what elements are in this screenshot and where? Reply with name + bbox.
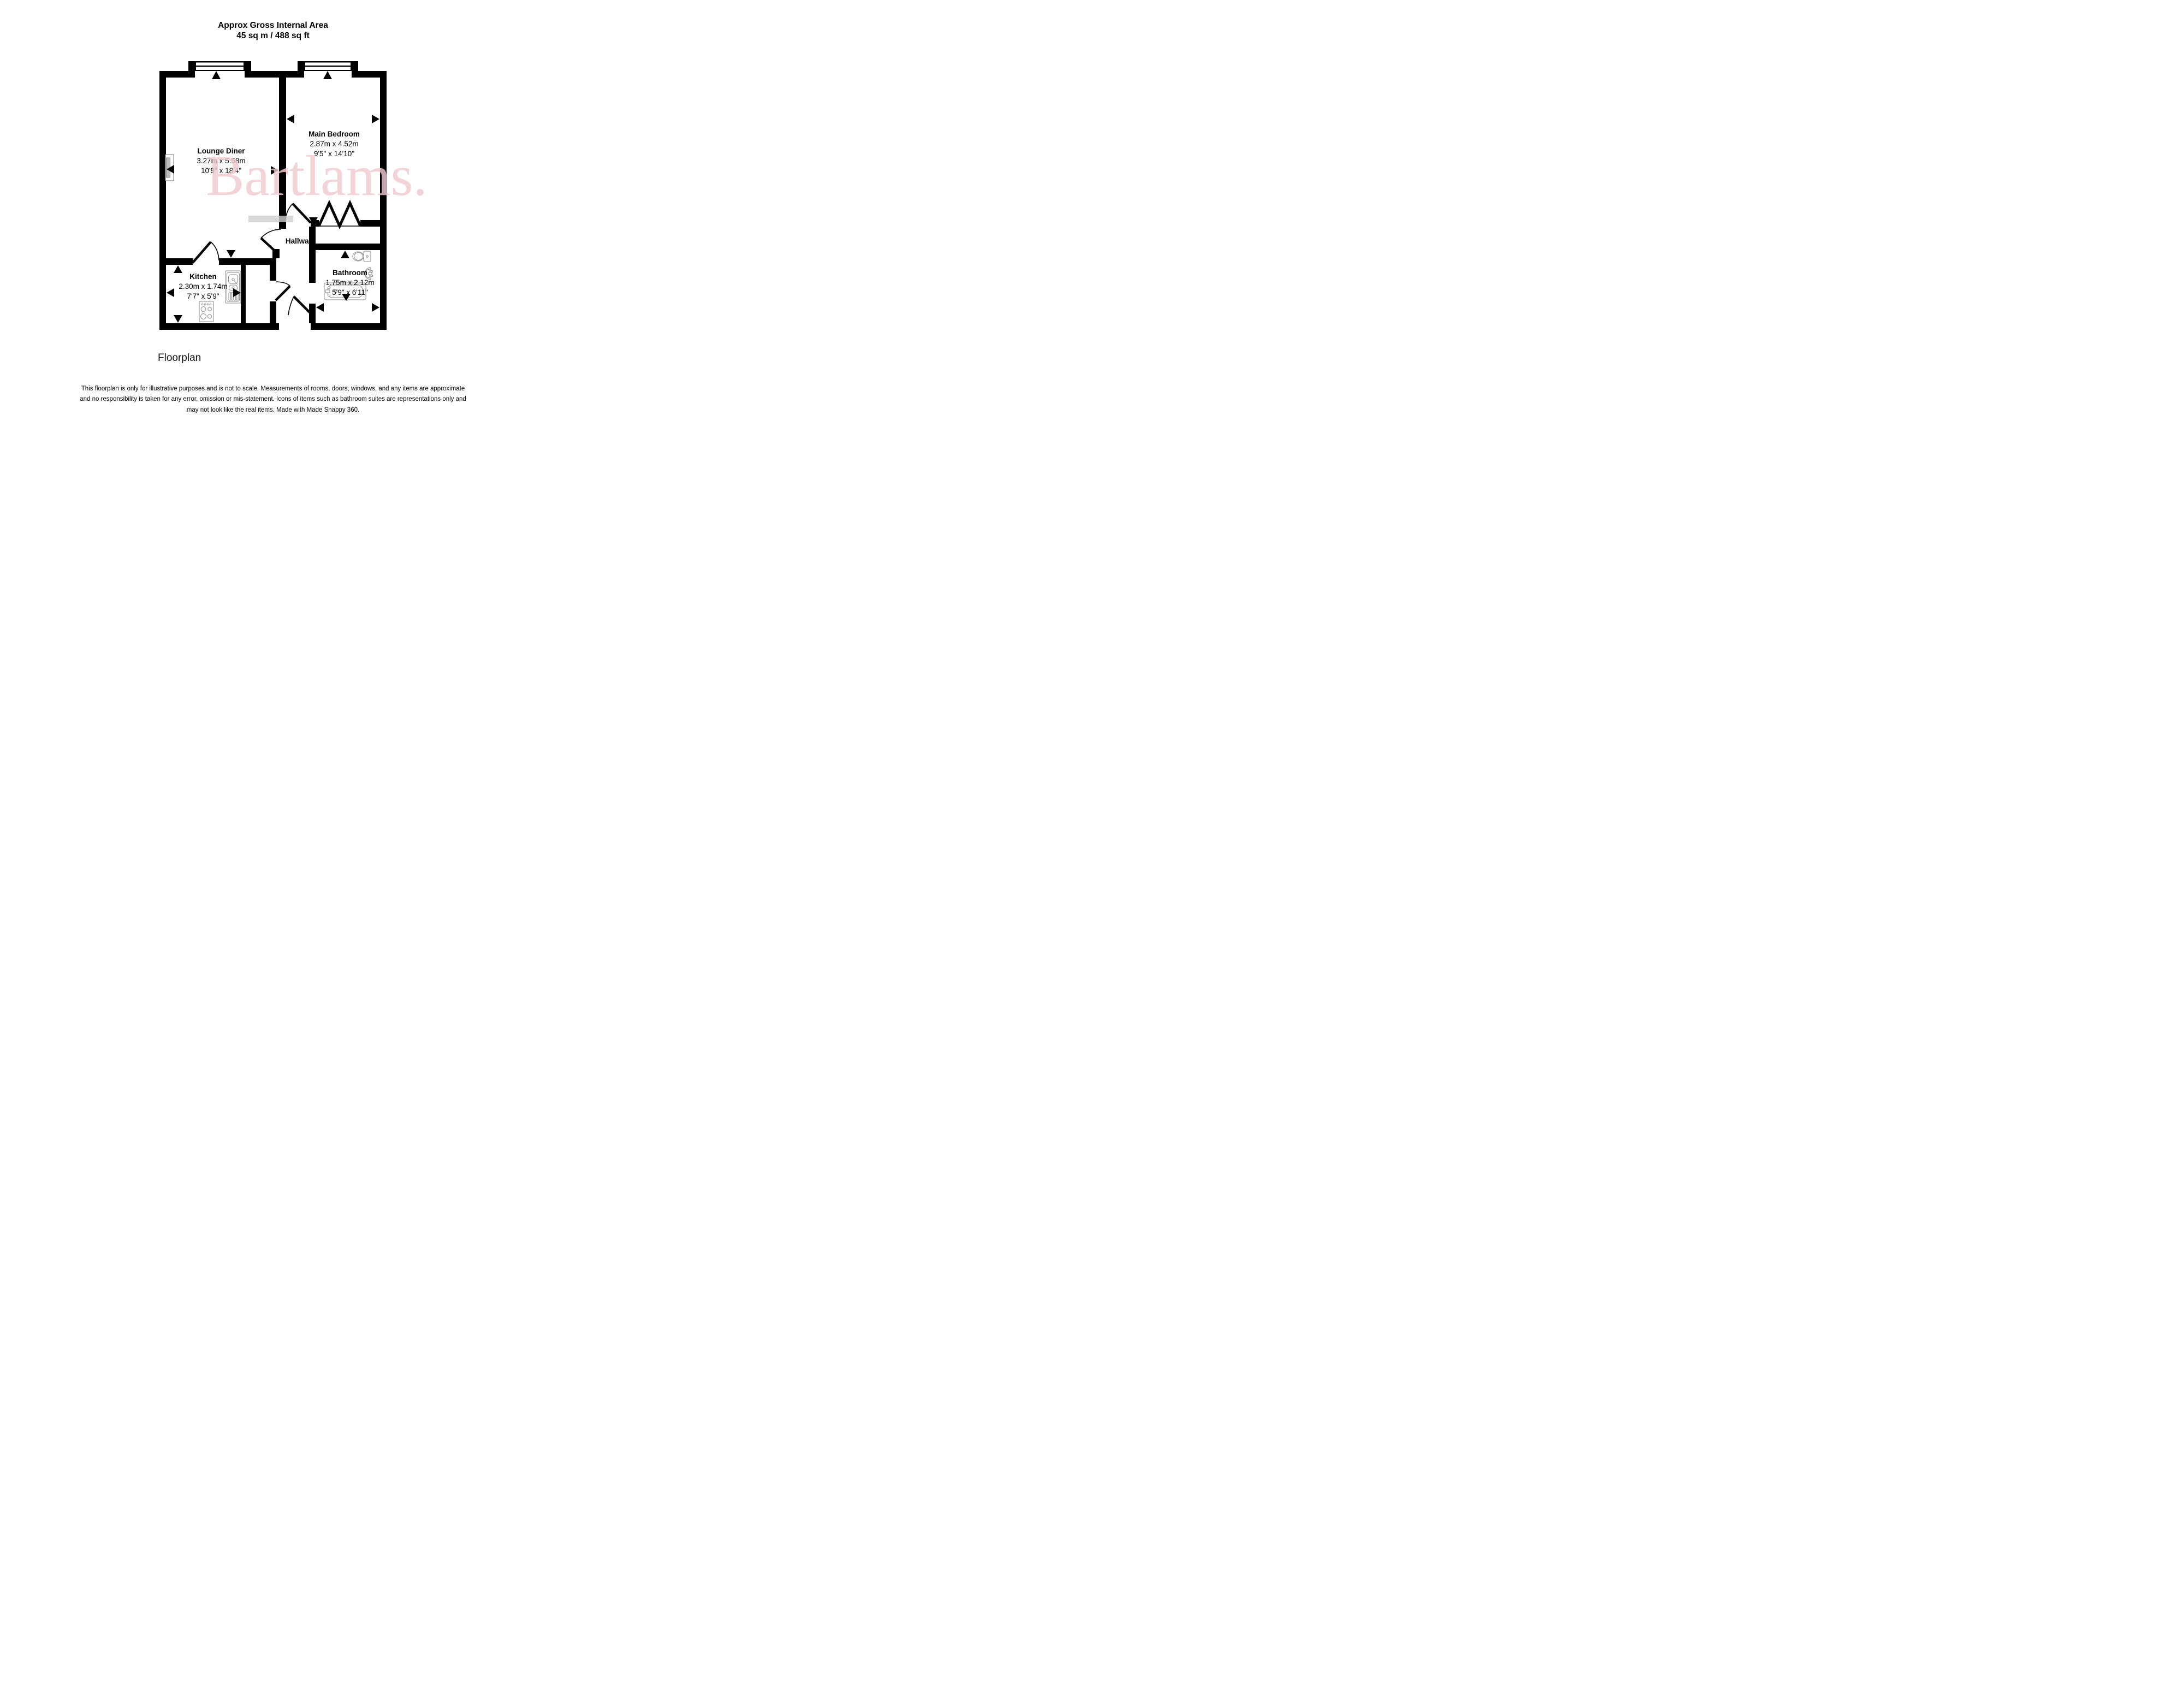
floorplan-drawing: Lounge Diner 3.27m x 5.58m 10'9" x 18'4"… — [0, 0, 546, 423]
hallway-entrance-door-icon — [276, 282, 290, 300]
wall-top-seg-2 — [251, 71, 279, 78]
wall-bathroom-top — [309, 244, 387, 250]
bedroom-arrow-up-icon — [323, 71, 332, 79]
bedroom-name: Main Bedroom — [308, 130, 360, 138]
kitchen-metric: 2.30m x 1.74m — [179, 282, 227, 290]
bay-pillar-bedroom-left — [298, 61, 304, 78]
kitchen-arrow-left-icon — [167, 288, 174, 297]
toilet-icon — [353, 251, 371, 262]
wall-hallway-left-lower — [270, 301, 276, 323]
lounge-arrow-up-icon — [212, 71, 221, 79]
lounge-window-icon — [195, 61, 245, 71]
room-label-bathroom: Bathroom 1.75m x 2.12m 5'9" x 6'11" — [325, 269, 374, 297]
kitchen-imperial: 7'7" x 5'9" — [187, 292, 219, 300]
kitchen-name: Kitchen — [189, 272, 217, 281]
bay-pillar-lounge-right — [245, 61, 251, 78]
room-label-hallway: Hallway — [286, 237, 313, 245]
wall-left-outer — [159, 71, 166, 330]
bathroom-door-icon — [288, 297, 311, 315]
wall-top-seg-4 — [358, 71, 380, 78]
wall-kitchen-top-seg-1 — [166, 258, 193, 265]
bedroom-window-icon — [304, 61, 352, 71]
kitchen-arrow-up-icon — [174, 265, 182, 273]
wall-top-seg-3 — [286, 71, 298, 78]
wall-kitchen-top-seg-2 — [219, 258, 276, 265]
wall-hallway-left-upper — [270, 258, 276, 281]
bathroom-imperial: 5'9" x 6'11" — [332, 288, 368, 297]
bay-pillar-bedroom-right — [352, 61, 358, 78]
bathroom-arrow-up-icon — [341, 251, 349, 258]
lounge-arrow-down-icon — [227, 250, 235, 258]
floorplan-caption: Floorplan — [158, 352, 201, 364]
hob-icon — [199, 301, 213, 322]
wall-bottom-seg-left — [159, 323, 279, 330]
kitchen-door-icon — [193, 242, 219, 263]
room-label-kitchen: Kitchen 2.30m x 1.74m 7'7" x 5'9" — [179, 272, 227, 300]
bathroom-name: Bathroom — [333, 269, 367, 277]
lounge-door-icon — [261, 229, 281, 252]
sink-icon — [225, 271, 241, 303]
bay-pillar-lounge-left — [188, 61, 195, 78]
wall-kitchen-right — [241, 258, 246, 323]
kitchen-arrow-down-icon — [174, 315, 182, 323]
wall-bathroom-left-upper — [309, 227, 316, 283]
floorplan-page: Approx Gross Internal Area 45 sq m / 488… — [0, 0, 546, 423]
gray-beam-bar — [248, 216, 293, 222]
bathroom-arrow-right-icon — [372, 303, 379, 312]
disclaimer-text: This floorplan is only for illustrative … — [27, 384, 519, 416]
bathroom-arrow-left-icon — [316, 303, 324, 312]
watermark: Bartlams. — [206, 144, 427, 207]
bedroom-arrow-right-icon — [372, 115, 379, 123]
wall-top-seg-1 — [166, 71, 188, 78]
wall-bedroom-bottom-seg-2 — [360, 220, 387, 227]
bathroom-metric: 1.75m x 2.12m — [325, 278, 374, 287]
wall-bottom-seg-right — [311, 323, 387, 330]
bedroom-arrow-left-icon — [287, 115, 294, 123]
